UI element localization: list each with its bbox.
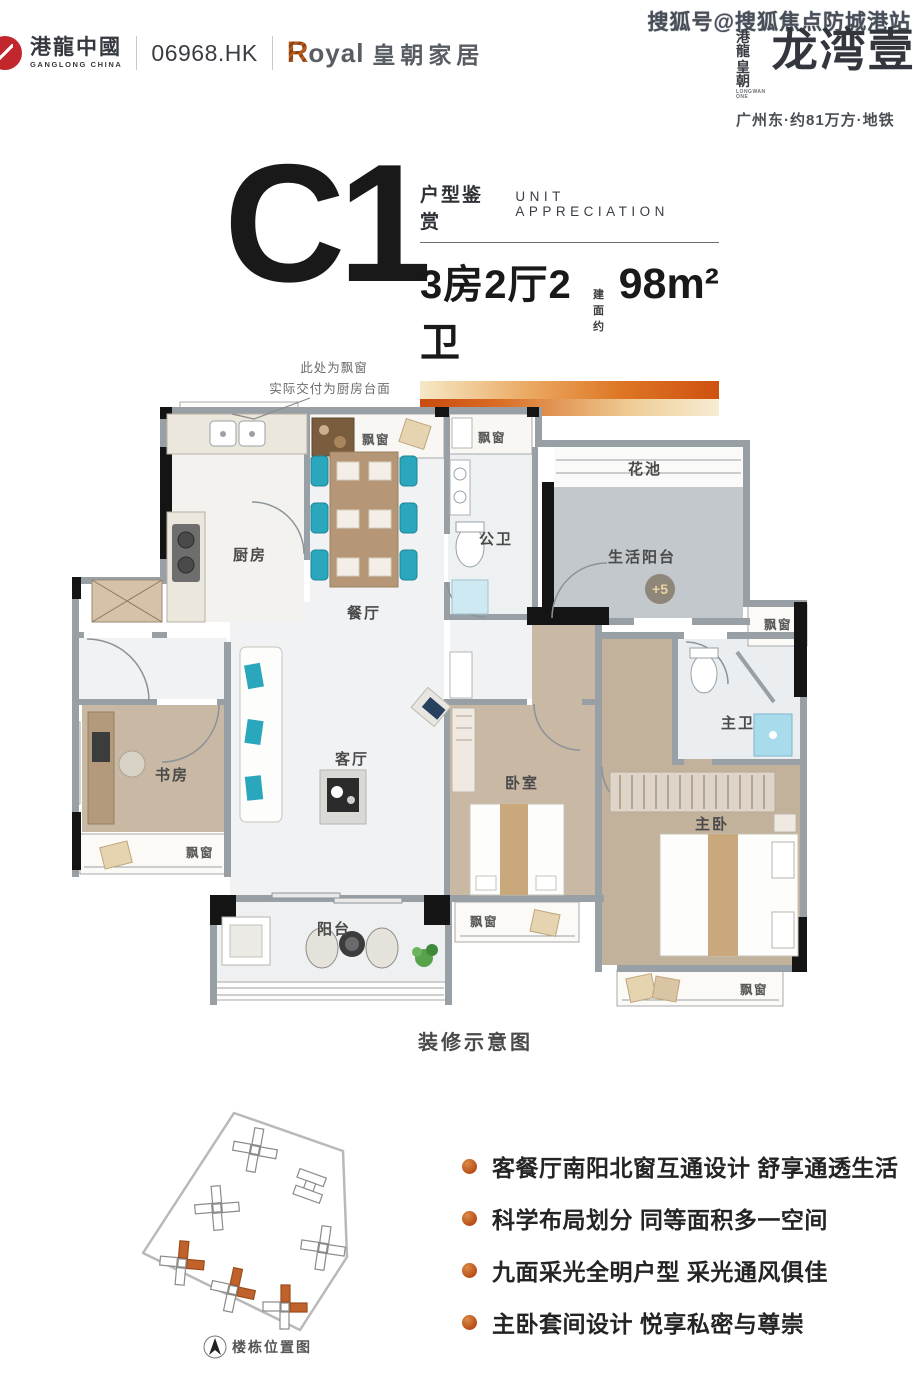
ganglong-logo-text: 港龍中國 GANGLONG CHINA <box>30 37 122 69</box>
bullet-dot-icon <box>462 1211 477 1226</box>
room-label-dining: 餐厅 <box>347 604 381 622</box>
room-label-guest-bath: 公卫 <box>479 531 513 548</box>
ganglong-logo-icon <box>0 36 22 70</box>
company-name: 港龍中國 <box>30 37 122 58</box>
highlight-text: 客餐厅南阳北窗互通设计 舒享通透生活 <box>492 1149 898 1183</box>
section-title-cn: 户型鉴赏 <box>420 180 501 234</box>
bullet-dot-icon <box>462 1315 477 1330</box>
room-label-balcony: 阳台 <box>317 920 351 938</box>
room-label-master-bath: 主卫 <box>721 714 755 732</box>
unit-code: C1 <box>224 146 425 301</box>
project-brand-block: 港龍 皇朝 LONGWAN ONE 龙湾壹 广州东·约81万方·地铁 <box>736 27 913 130</box>
bay-window-label-master-bottom: 飘窗 <box>740 982 768 997</box>
project-brand-bottom: 皇朝 <box>736 60 766 88</box>
highlight-item: 客餐厅南阳北窗互通设计 舒享通透生活 <box>462 1151 913 1181</box>
company-name-en: GANGLONG CHINA <box>30 61 122 69</box>
divider <box>272 36 273 70</box>
royal-logo-cn: 皇朝家居 <box>372 36 484 70</box>
highlight-item: 九面采光全明户型 采光通风俱佳 <box>462 1255 913 1285</box>
sitemap-svg: 楼栋位置图 <box>95 1085 405 1375</box>
room-label-master-bedroom: 主卧 <box>695 815 729 833</box>
project-brand-stack: 港龍 皇朝 LONGWAN ONE <box>736 30 766 100</box>
royal-r-mark-icon: R <box>287 36 309 70</box>
bay-window-label-study: 飘窗 <box>186 845 214 860</box>
sitemap-caption: 楼栋位置图 <box>232 1339 312 1355</box>
section-title-en: UNIT APPRECIATION <box>515 189 719 219</box>
header-logos: 港龍中國 GANGLONG CHINA 06968.HK Royal 皇朝家居 <box>0 24 484 82</box>
project-brand-top: 港龍 <box>736 30 766 58</box>
room-label-kitchen: 厨房 <box>233 546 267 564</box>
bay-window-label-bedroom: 飘窗 <box>470 914 498 929</box>
bullet-dot-icon <box>462 1263 477 1278</box>
project-name: 龙湾壹 <box>772 27 913 73</box>
highlight-item: 科学布局划分 同等面积多一空间 <box>462 1203 913 1233</box>
poster-page: 港龍中國 GANGLONG CHINA 06968.HK Royal 皇朝家居 … <box>0 0 913 1391</box>
annotation-line2: 实际交付为厨房台面 <box>269 381 391 396</box>
plan-caption: 装修示意图 <box>418 1026 533 1055</box>
project-brand-en: LONGWAN ONE <box>736 90 766 100</box>
bay-window-label-dining: 飘窗 <box>362 432 390 447</box>
unit-area-label: 建面约 <box>593 286 612 334</box>
unit-area-value: 98m² <box>619 260 719 309</box>
sitemap: 楼栋位置图 <box>95 1085 405 1375</box>
floorplan: 厨房 餐厅 客厅 书房 卧室 主卧 主卫 公卫 阳台 生活阳台 花池 飘窗 飘窗… <box>72 352 817 1057</box>
room-label-living: 客厅 <box>334 750 369 768</box>
highlight-item: 主卧套间设计 悦享私密与尊崇 <box>462 1307 913 1337</box>
floorplan-svg: 厨房 餐厅 客厅 书房 卧室 主卧 主卫 公卫 阳台 生活阳台 花池 飘窗 飘窗… <box>72 352 817 1057</box>
room-label-flower-bed: 花池 <box>628 460 662 478</box>
room-label-study: 书房 <box>155 766 189 784</box>
bullet-dot-icon <box>462 1159 477 1174</box>
highlight-text: 科学布局划分 同等面积多一空间 <box>492 1201 828 1235</box>
highlights-list: 客餐厅南阳北窗互通设计 舒享通透生活 科学布局划分 同等面积多一空间 九面采光全… <box>462 1151 913 1359</box>
project-tagline: 广州东·约81万方·地铁 <box>736 109 913 130</box>
divider <box>136 36 137 70</box>
highlight-text: 九面采光全明户型 采光通风俱佳 <box>492 1253 828 1287</box>
highlight-text: 主卧套间设计 悦享私密与尊崇 <box>492 1305 804 1339</box>
room-label-service-balcony: 生活阳台 <box>608 548 676 566</box>
stock-code: 06968.HK <box>151 40 257 67</box>
royal-logo: Royal 皇朝家居 <box>287 36 485 70</box>
annotation-line1: 此处为飘窗 <box>300 361 368 375</box>
floor-badge-text: +5 <box>652 581 668 597</box>
royal-logo-text: oyal <box>308 38 364 69</box>
unit-layout: 3房2厅2卫 <box>420 252 593 368</box>
room-label-bedroom: 卧室 <box>505 774 539 792</box>
bay-window-label-guest-bath: 飘窗 <box>478 430 506 445</box>
unit-section-title: 户型鉴赏 UNIT APPRECIATION <box>420 180 719 243</box>
bay-window-label-master-right: 飘窗 <box>764 617 792 632</box>
